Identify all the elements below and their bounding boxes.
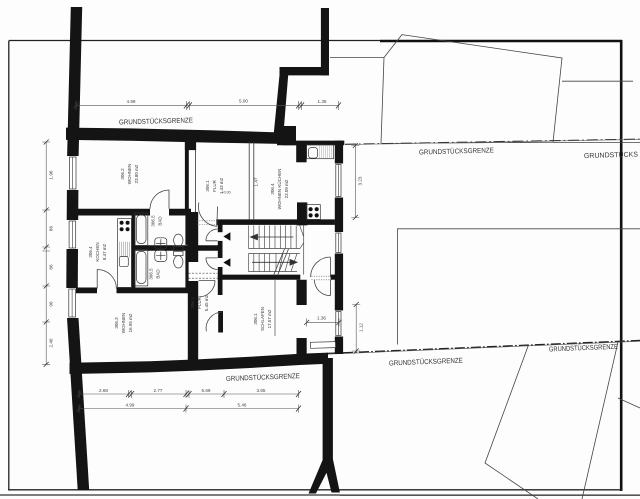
svg-text:4.99: 4.99 (127, 99, 136, 104)
svg-text:306.5: 306.5 (149, 268, 154, 280)
svg-text:3.23: 3.23 (358, 176, 363, 185)
svg-text:5.46: 5.46 (238, 403, 247, 408)
svg-text:1.36: 1.36 (318, 99, 327, 104)
svg-text:WOHNEN: WOHNEN (127, 164, 132, 185)
svg-text:16.95 m2: 16.95 m2 (128, 313, 133, 332)
svg-text:+0.00: +0.00 (222, 191, 231, 195)
svg-text:86: 86 (48, 226, 53, 232)
svg-text:1.47: 1.47 (254, 177, 259, 186)
svg-text:306.1: 306.1 (205, 180, 210, 192)
svg-text:306.3: 306.3 (114, 317, 119, 329)
svg-text:FLUR: FLUR (197, 296, 202, 309)
svg-text:WOHNEN: WOHNEN (121, 313, 126, 334)
svg-text:306.2: 306.2 (120, 168, 125, 180)
svg-text:3.65: 3.65 (257, 388, 266, 393)
svg-text:2.68: 2.68 (99, 388, 108, 393)
svg-text:86: 86 (48, 264, 53, 270)
svg-text:306.4: 306.4 (88, 246, 93, 258)
svg-text:306.1: 306.1 (253, 313, 258, 325)
svg-text:FLUR: FLUR (212, 179, 217, 192)
svg-text:23.80 m2: 23.80 m2 (134, 164, 139, 183)
svg-text:BAD: BAD (156, 269, 161, 279)
svg-text:5.00: 5.00 (239, 99, 248, 104)
svg-text:8.47 m2: 8.47 m2 (102, 243, 107, 260)
svg-text:5.45 m2: 5.45 m2 (204, 294, 209, 311)
svg-text:BAD: BAD (158, 216, 163, 226)
svg-text:306.4: 306.4 (270, 183, 275, 195)
svg-text:WOHNEN KÜCHEN: WOHNEN KÜCHEN (276, 169, 282, 210)
svg-text:23.09 m2: 23.09 m2 (284, 179, 289, 198)
svg-text:306.1: 306.1 (190, 297, 195, 309)
svg-text:4.99: 4.99 (126, 403, 135, 408)
svg-text:306.5: 306.5 (151, 215, 156, 227)
svg-text:KOCHEN: KOCHEN (95, 242, 100, 261)
svg-text:SCHLAFEN: SCHLAFEN (260, 307, 265, 331)
svg-text:5.69: 5.69 (202, 388, 211, 393)
svg-text:GRUNDSTÜCKS: GRUNDSTÜCKS (584, 150, 639, 160)
svg-text:17.57 m2: 17.57 m2 (267, 309, 272, 328)
svg-text:2.77: 2.77 (154, 388, 163, 393)
svg-text:2.40: 2.40 (48, 338, 53, 347)
svg-text:96: 96 (48, 301, 53, 307)
svg-text:1.36: 1.36 (317, 316, 326, 321)
svg-text:1.12: 1.12 (359, 323, 364, 332)
svg-text:1.96: 1.96 (48, 170, 53, 179)
